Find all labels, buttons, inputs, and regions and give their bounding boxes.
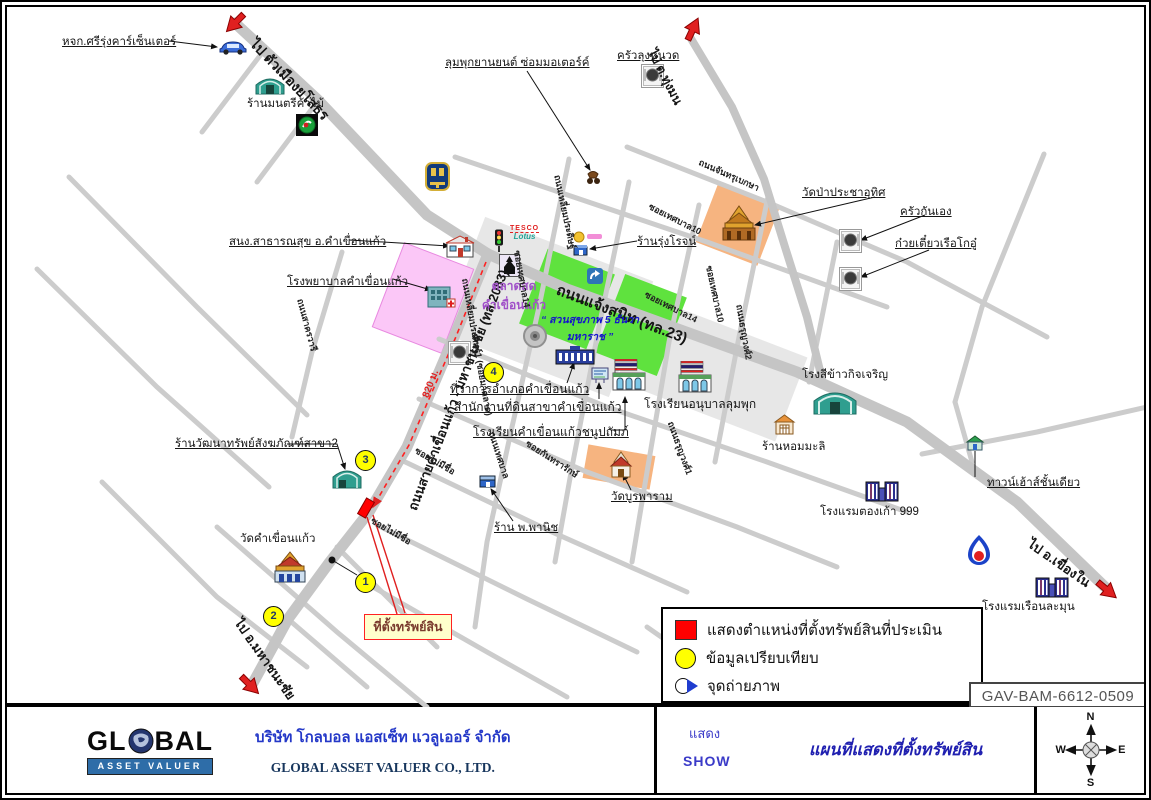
company-name-english: GLOBAL ASSET VALUER CO., LTD. [255,760,511,776]
page: TESCO Lotus หจก.ศรีรุ่งคาร์เซ็นเตอร์ ไป … [0,0,1151,800]
map-label: ร้าน พ.พานิช [494,519,558,537]
map-label: ครัวกันเอง [900,203,952,221]
logo-bal-text: BAL [155,726,214,757]
map-label: วัดคำเขื่อนแก้ว [240,530,315,548]
footer-compass-cell: N S W E [1037,707,1144,793]
district-office-icon [555,345,595,365]
map-label: ทาวน์เฮ้าส์ชั้นเดียว [987,474,1080,492]
page-frame: TESCO Lotus หจก.ศรีรุ่งคาร์เซ็นเตอร์ ไป … [5,5,1146,795]
map-label: โรงแรมตองเก้า 999 [820,503,919,521]
map-label: โรงแรมเรือนละมุน [982,598,1075,616]
map-label: ร้านมนตรีค้าไม้ [247,95,324,113]
hospital-icon [424,281,456,309]
temple-icon [271,551,309,583]
photo-dot [329,557,336,564]
map-label: ร้านรุ่งโรจน์ [637,233,696,251]
show-label-english: SHOW [683,753,731,769]
map-label: หจก.ศรีรุ่งคาร์เซ็นเตอร์ [62,33,176,51]
compass-west: W [1056,744,1066,756]
baac-bank-logo [425,162,450,191]
comparison-point-1: 1 [355,572,376,593]
comparison-point-3: 3 [355,450,376,471]
map-label: โรงสีข้าวกิจเจริญ [802,366,888,384]
map-label: ร้านวัฒนาทรัพย์สังฆภัณฑ์สาขา2 [175,435,338,453]
orange-shop-icon [773,414,796,435]
map-label: วัดบูรพาราม [611,488,673,506]
legend-label: จุดถ่ายภาพ [707,674,780,698]
blue-sign-icon [587,268,603,284]
globe-icon [128,728,154,754]
small-shop-icon [479,475,496,488]
map-area: TESCO Lotus หจก.ศรีรุ่งคาร์เซ็นเตอร์ ไป … [7,7,1144,707]
dish-icon [839,229,862,253]
legend-label: ข้อมูลเปรียบเทียบ [706,646,819,670]
school-flag-icon [611,359,647,391]
property-location-box: ที่ตั้งทรัพย์สิน [364,614,452,640]
townhouse-icon [965,435,985,451]
map-label: สนง.สาธารณสุข อ.คำเขื่อนแก้ว [229,233,386,251]
map-label: ร้านหอมมะลิ [762,438,825,456]
legend-label: แสดงตำแหน่งที่ตั้งทรัพย์สินที่ประเมิน [707,618,942,642]
map-label: โรงเรียนอนุบาลลุมพุก [644,395,756,414]
map-label: โรงพยาบาลคำเขื่อนแก้ว [287,273,408,291]
map-title: แผนที่แสดงที่ตั้งทรัพย์สิน [767,737,1024,763]
compass-east: E [1118,744,1125,756]
hotel-icon [865,479,899,502]
school-flag-icon [677,361,713,393]
temple-icon [718,205,760,243]
legend-item-photo: จุดถ่ายภาพ [675,672,981,700]
legend-item-comparison: ข้อมูลเปรียบเทียบ [675,644,981,672]
logo-gl-text: GL [87,726,127,757]
motorbike-icon [585,167,601,185]
footer: GL BAL ASSET VALUER บริษัท โกลบอล แอสเซ็… [7,703,1144,793]
lotus-text: Lotus [510,233,539,241]
show-label-thai: แสดง [689,723,720,744]
compass-north: N [1087,711,1095,723]
red-square-icon [675,620,697,640]
traffic-light-icon [493,229,505,252]
legend-item-property: แสดงตำแหน่งที่ตั้งทรัพย์สินที่ประเมิน [675,616,981,644]
park-label: “ สวนสุขภาพ 5 ธันวา มหาราช ” [534,311,646,345]
dish-icon [839,267,862,291]
map-label: ลุมพุกยานยนต์ ซ่อมมอเตอร์ค์ [445,54,589,72]
map-label: ที่ว่าการอำเภอคำเขื่อนแก้ว [450,380,589,399]
legend-box: แสดงตำแหน่งที่ตั้งทรัพย์สินที่ประเมิน ข้… [661,607,983,703]
map-label: วัดป่าประชาอุทิศ [802,184,885,202]
reference-number-box: GAV-BAM-6612-0509 [969,682,1144,707]
tesco-lotus-logo: TESCO Lotus [510,225,539,241]
health-office-icon [445,235,475,258]
land-office-icon [591,367,609,383]
company-logo: GL BAL ASSET VALUER [87,726,213,775]
compass-south: S [1087,777,1094,789]
temple-icon [607,451,635,479]
photo-point-icon [675,678,697,694]
map-label: สำนักงานที่ดินสาขาคำเขื่อนแก้ว [454,398,621,417]
comparison-point-2: 2 [263,606,284,627]
footer-company-cell: GL BAL ASSET VALUER บริษัท โกลบอล แอสเซ็… [7,707,657,793]
comparison-point-4: 4 [483,362,504,383]
car-icon [219,39,247,56]
company-name-thai: บริษัท โกลบอล แอสเซ็ท แวลูเออร์ จำกัด [255,725,511,749]
ptt-logo [967,534,991,566]
yellow-circle-icon [675,648,696,669]
footer-title-cell: แสดง SHOW แผนที่แสดงที่ตั้งทรัพย์สิน [657,707,1037,793]
rice-mill-icon [812,387,858,415]
map-label: ตลาดสด คำเขื่อนแก้ว [477,277,551,315]
map-label: ก๋วยเตี๋ยวเรือโกอู๋ [895,235,977,253]
logo-banner: ASSET VALUER [87,758,213,775]
compass-icon: N S W E [1054,713,1128,787]
